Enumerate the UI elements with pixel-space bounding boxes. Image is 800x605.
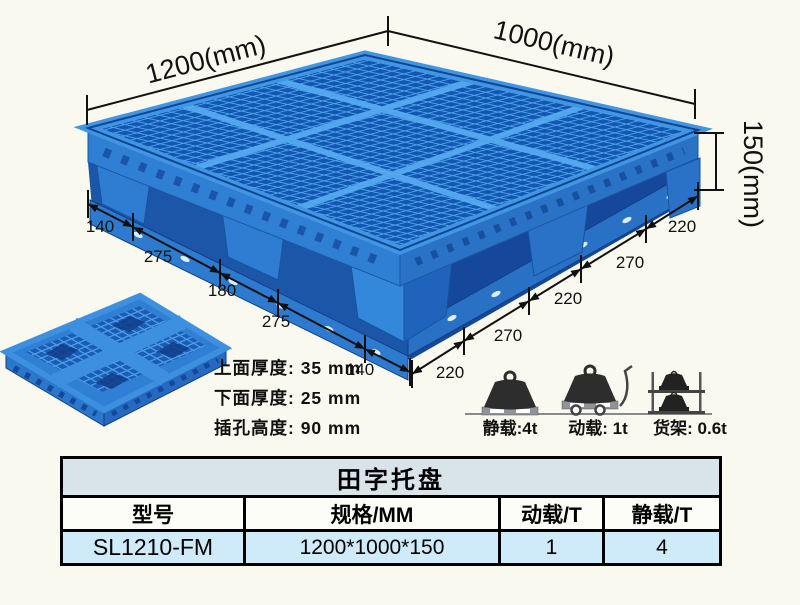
column-header-static-load: 静载/T (605, 498, 719, 529)
dimension-height-label: 150(mm) (738, 120, 768, 228)
left-chain-label: 180 (208, 281, 236, 300)
load-ratings: 静载:4t 动载: 1t 货架: 0.6t (465, 366, 727, 438)
column-header-spec: 规格/MM (246, 498, 501, 529)
note-fork-height: 插孔高度: 90 mm (214, 418, 361, 438)
product-sheet: { "colors": { "background": "#faf9ef", "… (0, 0, 800, 600)
rack-load-label: 货架: 0.6t (653, 418, 727, 438)
table-header-row: 型号 规格/MM 动载/T 静载/T (63, 498, 719, 529)
static-load-icon (482, 372, 538, 415)
cell-dynamic-load: 1 (501, 532, 605, 563)
cell-model: SL1210-FM (63, 532, 246, 563)
rack-load-icon (648, 372, 705, 415)
right-chain-label: 220 (436, 363, 464, 382)
spec-table: 田字托盘 型号 规格/MM 动载/T 静载/T SL1210-FM 1200*1… (60, 456, 722, 566)
dynamic-load-label: 动载: 1t (568, 418, 628, 438)
right-chain-label: 220 (554, 289, 582, 308)
right-chain-label: 220 (668, 217, 696, 236)
static-load-label: 静载:4t (483, 418, 538, 438)
note-bottom-thickness: 下面厚度: 25 mm (214, 388, 361, 408)
left-chain-label: 275 (262, 312, 290, 331)
left-chain-label: 140 (86, 217, 114, 236)
dimension-length-label: 1200(mm) (142, 29, 269, 89)
cell-spec: 1200*1000*150 (246, 532, 501, 563)
table-title: 田字托盘 (63, 459, 719, 498)
thickness-notes: 上面厚度: 35 mm 下面厚度: 25 mm 插孔高度: 90 mm (214, 358, 361, 438)
dimension-height: 150(mm) (694, 120, 768, 228)
dimension-width-label: 1000(mm) (491, 14, 618, 72)
column-header-dynamic-load: 动载/T (501, 498, 605, 529)
small-pallet (6, 296, 226, 426)
cell-static-load: 4 (605, 532, 719, 563)
right-chain-label: 270 (494, 326, 522, 345)
table-row: SL1210-FM 1200*1000*150 1 4 (63, 529, 719, 563)
note-top-thickness: 上面厚度: 35 mm (214, 358, 361, 378)
left-chain-label: 275 (144, 247, 172, 266)
column-header-model: 型号 (63, 498, 246, 529)
dynamic-load-icon (562, 366, 632, 415)
right-chain-label: 270 (616, 253, 644, 272)
